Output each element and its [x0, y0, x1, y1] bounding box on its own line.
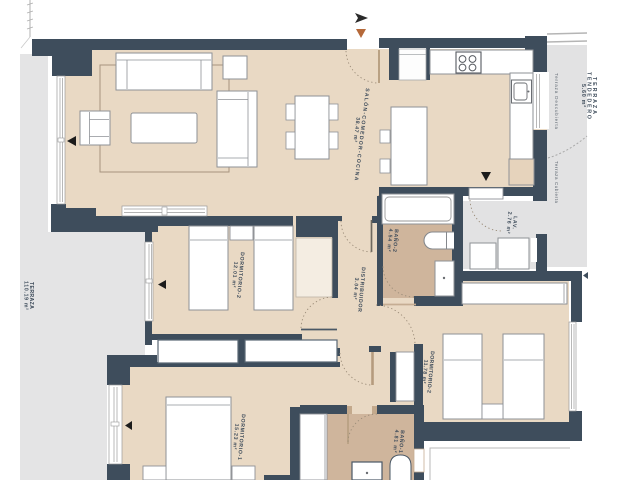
svg-text:Terraza Cubierta: Terraza Cubierta	[554, 161, 559, 204]
svg-text:Terraza Descubierta: Terraza Descubierta	[554, 73, 559, 130]
svg-text:TERRAZA110.19 m²: TERRAZA110.19 m²	[22, 281, 34, 310]
svg-text:BAÑO-14.81 m²: BAÑO-14.81 m²	[391, 429, 406, 453]
svg-text:BAÑO-24.54 m²: BAÑO-24.54 m²	[385, 228, 400, 252]
